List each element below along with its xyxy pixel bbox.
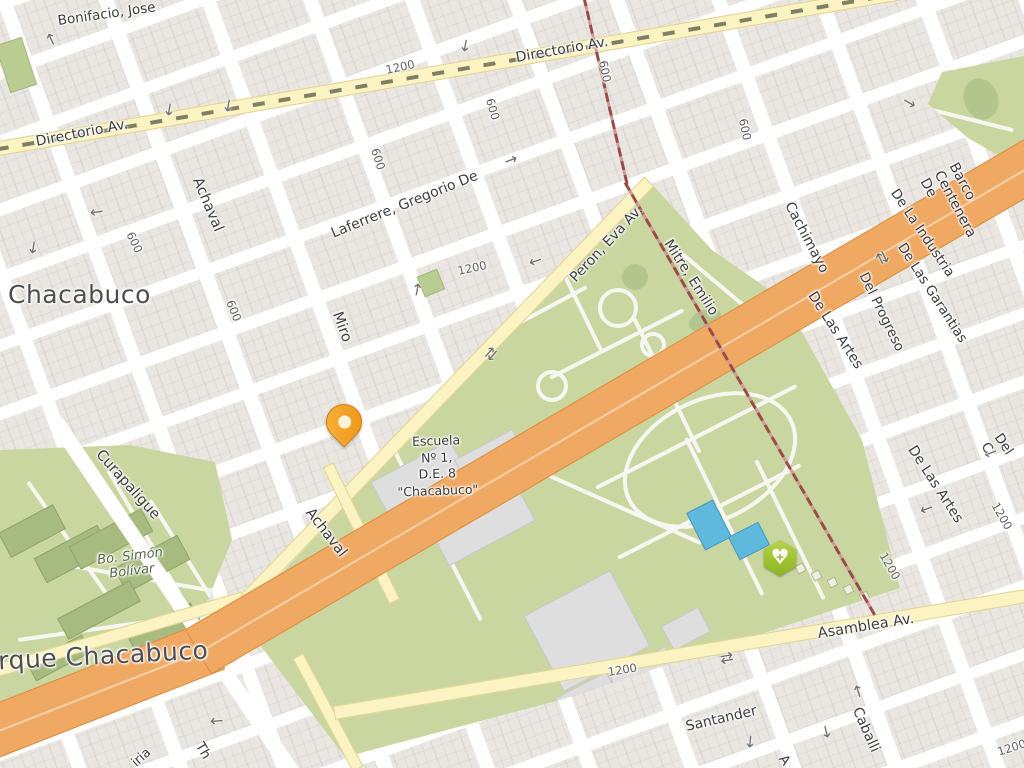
small-structure xyxy=(826,576,838,588)
health-hex-badge: ♥ + xyxy=(764,540,796,576)
health-poi[interactable]: ♥ + xyxy=(764,540,796,576)
oneway-arrow-icon: → xyxy=(209,712,224,732)
small-structure xyxy=(842,583,854,595)
poi-escuela-label: Escuela Nº 1, D.E. 8 "Chacabuco" xyxy=(392,431,482,500)
plus-icon: + xyxy=(775,550,784,563)
tree-cluster xyxy=(622,264,648,290)
oneway-arrow-icon: → xyxy=(89,202,105,223)
park-circle-path xyxy=(598,288,638,328)
oneway-arrow-icon: → xyxy=(741,734,761,749)
map-canvas[interactable]: Bonifacio, JoseDirectorio Av.1200Directo… xyxy=(0,0,1024,768)
pin-hole xyxy=(335,413,353,431)
area-chacabuco: Chacabuco xyxy=(8,280,151,310)
park-circle-path xyxy=(536,370,568,402)
